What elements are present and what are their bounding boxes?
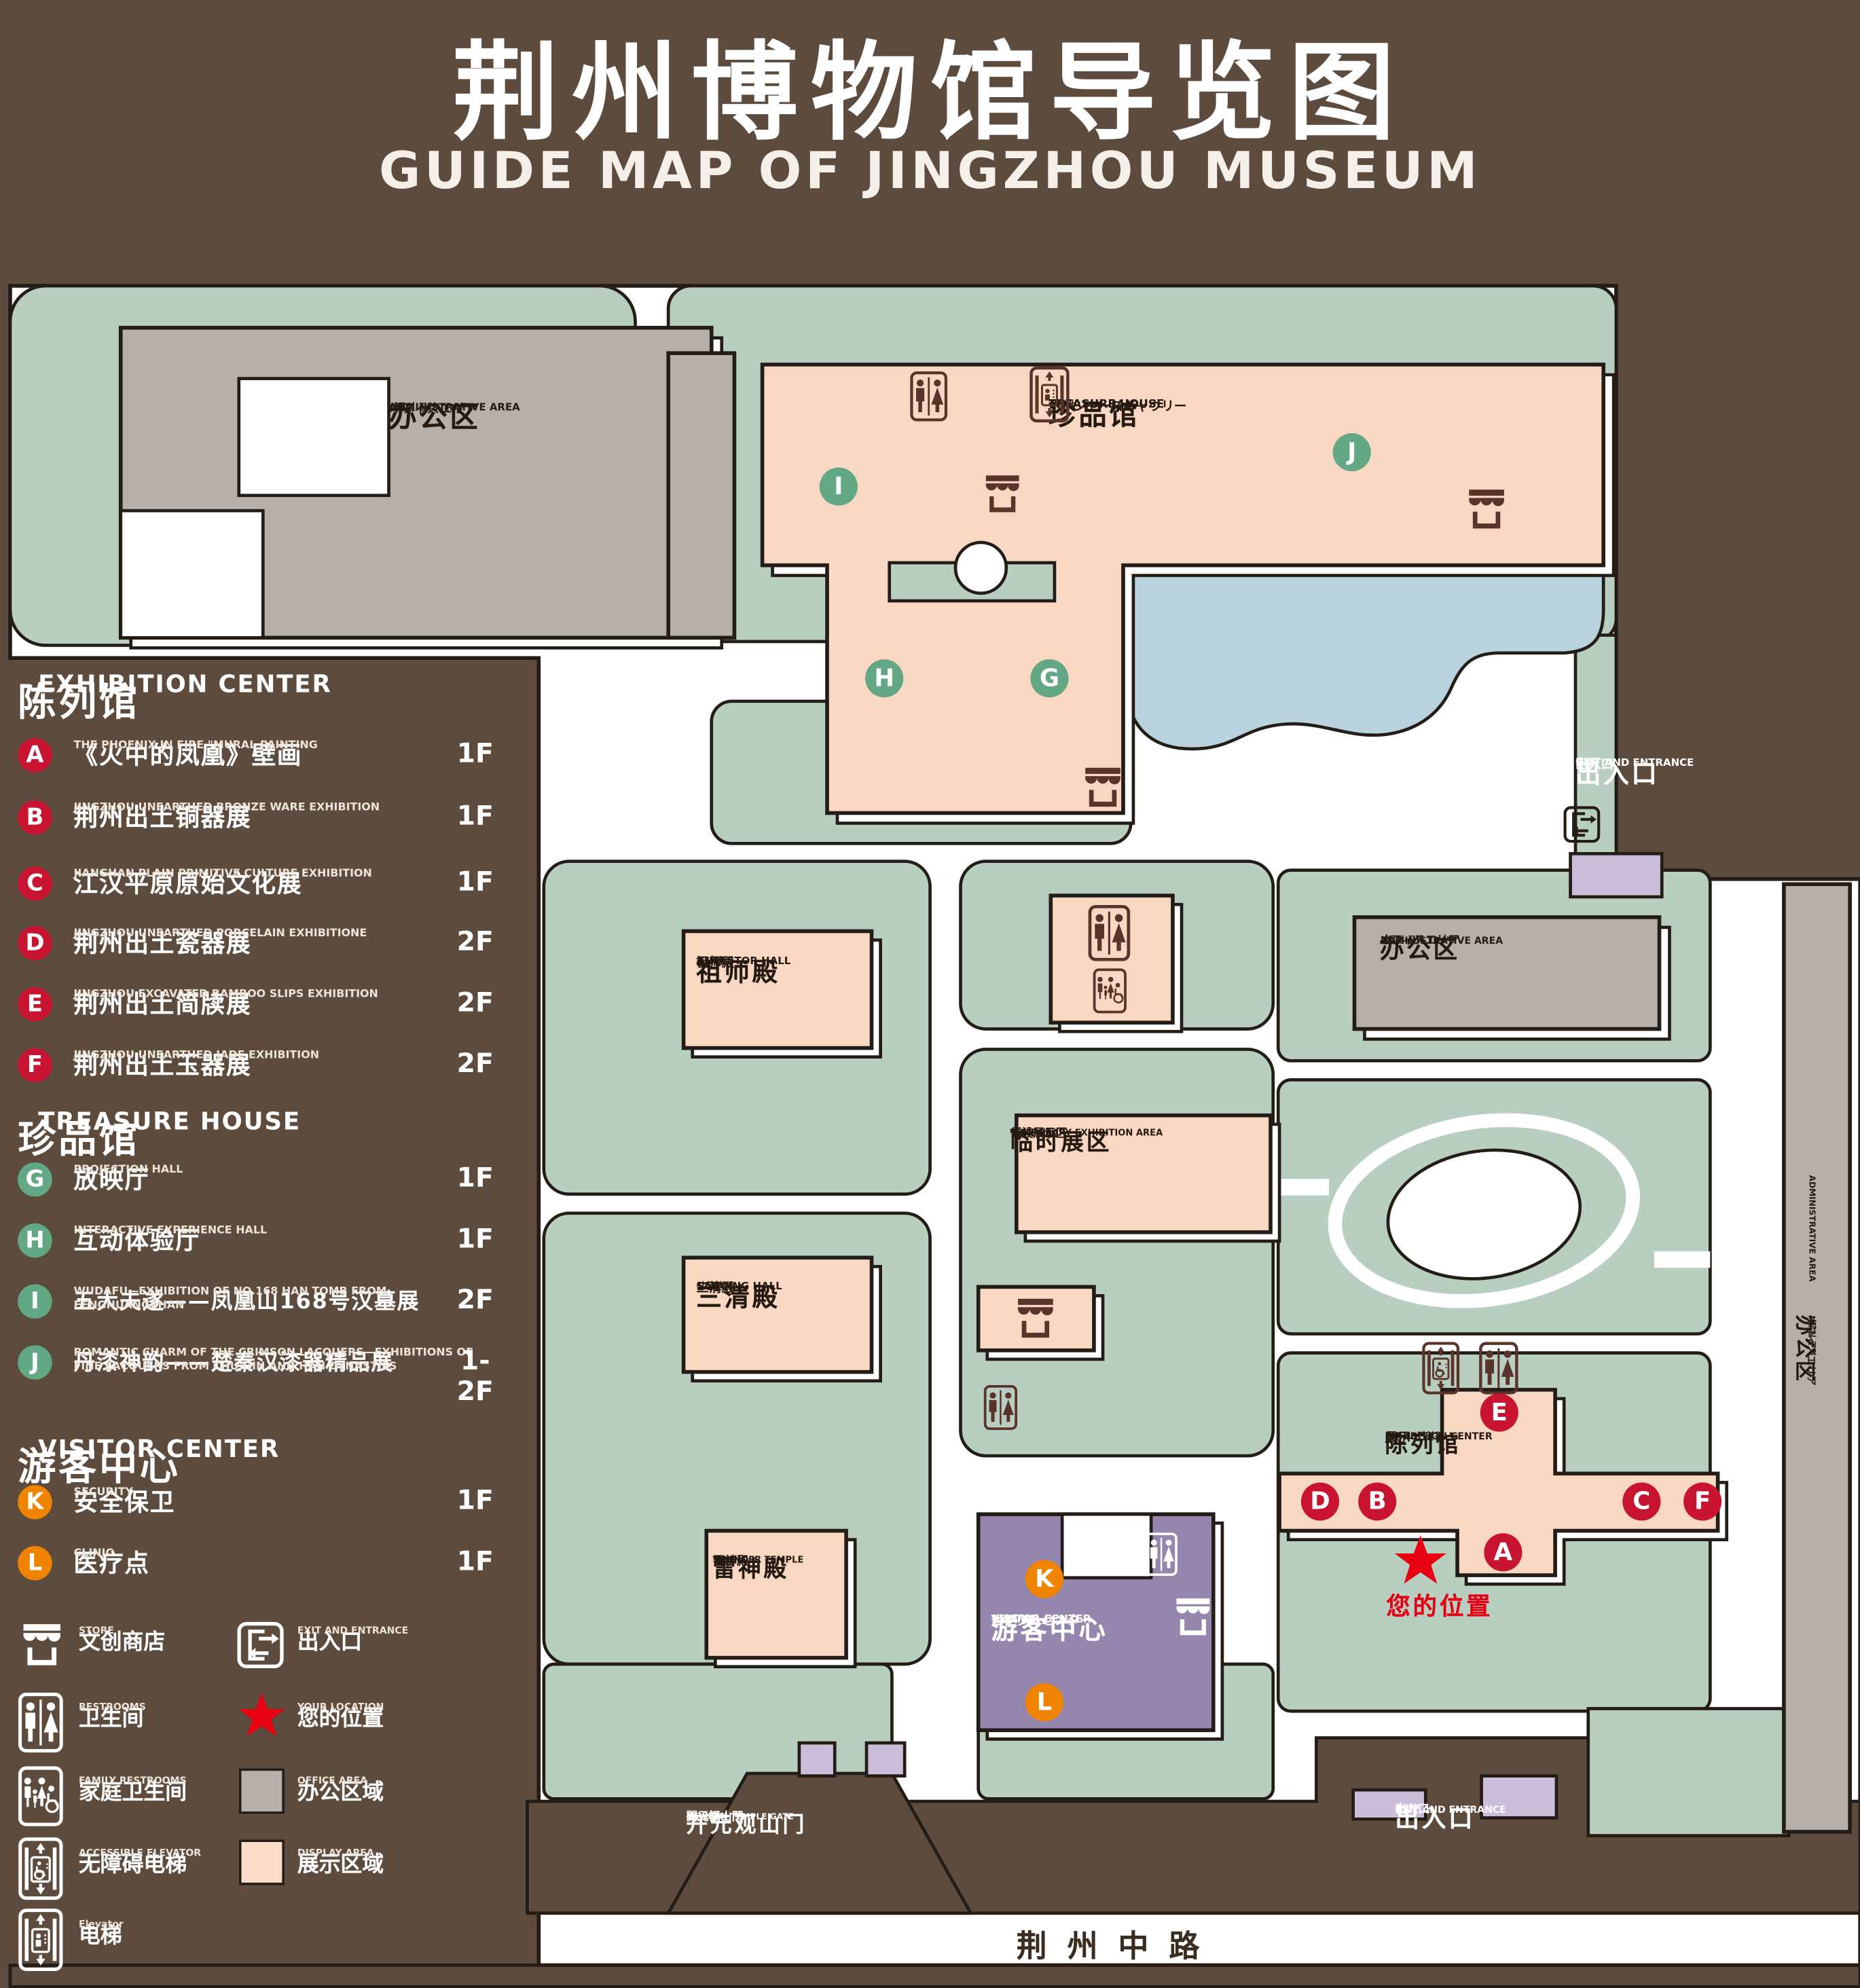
your-location-label: 您的位置 [1345, 1588, 1535, 1623]
elevator-icon [18, 1908, 66, 1966]
legend-item-c: C 江汉平原原始文化展 JIANGHAN PLAIN PRIMITIVE CUL… [18, 870, 528, 929]
floor-label: 1-2F [448, 1345, 503, 1406]
map-marker-g: G [1030, 659, 1068, 697]
marker-badge-i: I [18, 1285, 52, 1319]
map-marker-c: C [1622, 1482, 1660, 1520]
marker-badge-a: A [18, 738, 52, 773]
page-subtitle: GUIDE MAP OF JINGZHOU MUSEUM [0, 143, 1860, 201]
store-icon [18, 1621, 66, 1679]
page-title: 荆州博物馆导览图 [0, 7, 1860, 161]
floor-label: 1F [448, 1162, 503, 1193]
floor-label: 2F [448, 1285, 503, 1315]
map-marker-l: L [1025, 1683, 1063, 1721]
floor-label: 1F [448, 800, 503, 831]
map-marker-e: E [1480, 1393, 1518, 1431]
legend-key-your-location: 您的位置YOUR LOCATION [236, 1692, 452, 1758]
legend-key-exit: 出入口EXIT AND ENTRANCE [236, 1621, 452, 1687]
marker-badge-c: C [18, 866, 52, 901]
family-restroom-icon [18, 1766, 66, 1824]
marker-badge-f: F [18, 1048, 52, 1083]
restroom-icon [18, 1692, 66, 1750]
legend-key-elevator: 电梯Elevator [18, 1908, 234, 1974]
map-marker-d: D [1301, 1482, 1339, 1520]
marker-badge-g: G [18, 1162, 52, 1197]
legend-item-g: G 放映厅 PROJECTION HALL 1F [18, 1166, 528, 1225]
legend-item-d: D 荆州出土瓷器展 JINGZHOU UNEARTHED PORCELAIN E… [18, 930, 528, 989]
accessible-elevator-icon [18, 1837, 66, 1895]
your-location-star-icon [1393, 1534, 1444, 1585]
legend-item-i: I 五大夫遂——凤凰山168号汉墓展 WUDAFU—EXHIBITION OF … [18, 1288, 528, 1346]
legend-item-a: A 《火中的凤凰》壁画 THE PHOENIX IN FIRE "MURAL P… [18, 742, 528, 800]
legend-key-store: 文创商店STORE [18, 1621, 234, 1687]
legend-key-family-restrooms: 家庭卫生间FAMILY RESTROOMS [18, 1766, 234, 1832]
legend-key-accessible-elevator: 无障碍电梯ACCESSIBLE ELEVATOR [18, 1837, 234, 1902]
legend-item-j: J 丹漆神韵——楚秦汉漆器精品展 ROMANTIC CHARM OF THE C… [18, 1349, 528, 1407]
marker-badge-b: B [18, 800, 52, 835]
location-star-icon [236, 1692, 287, 1743]
floor-label: 1F [448, 1546, 503, 1577]
marker-badge-h: H [18, 1223, 52, 1258]
map-marker-f: F [1683, 1482, 1721, 1520]
legend-key-office-area: 办公区域OFFICE AREA [236, 1766, 452, 1832]
marker-badge-e: E [18, 987, 52, 1022]
legend-item-k: K 安全保卫 SECURITY 1F [18, 1489, 528, 1547]
floor-label: 1F [448, 1485, 503, 1515]
marker-badge-k: K [18, 1485, 52, 1520]
map-marker-k: K [1025, 1560, 1063, 1598]
floor-label: 1F [448, 1223, 503, 1254]
legend-item-e: E 荆州出土简牍展 JINGZHOU EXCAVATED BAMBOO SLIP… [18, 991, 528, 1049]
map-marker-h: H [865, 659, 903, 697]
map-marker-b: B [1358, 1482, 1396, 1520]
exit-icon [236, 1621, 285, 1679]
display-area-swatch [239, 1839, 285, 1885]
office-area-swatch [239, 1768, 285, 1814]
legend-item-f: F 荆州出土玉器展 JINGZHOU UNEARTHED JADE EXHIBI… [18, 1052, 528, 1110]
guide-map-page: 荆州博物馆导览图 GUIDE MAP OF JINGZHOU MUSEUM 陈列… [0, 0, 1860, 1988]
marker-badge-l: L [18, 1546, 52, 1581]
legend-item-b: B 荆州出土铜器展 JINGZHOU UNEARTHED BRONZE WARE… [18, 804, 528, 862]
road-label: 荆州中路 [1017, 1921, 1220, 1965]
legend-key-restrooms: 卫生间RESTROOMS [18, 1692, 234, 1758]
map-marker-a: A [1484, 1533, 1522, 1571]
map-marker-j: J [1333, 433, 1371, 471]
legend-key-display-area: 展示区域DISPLAY AREA [236, 1837, 452, 1902]
floor-label: 1F [448, 866, 503, 897]
floor-label: 2F [448, 987, 503, 1018]
map-marker-i: I [820, 468, 858, 506]
floor-label: 2F [448, 1048, 503, 1079]
legend-item-l: L 医疗点 CLINIC 1F [18, 1550, 528, 1608]
floor-label: 1F [448, 738, 503, 769]
legend-item-h: H 互动体验厅 INTERACTIVE EXPERIENCE HALL 1F [18, 1227, 528, 1285]
floor-label: 2F [448, 926, 503, 957]
marker-badge-d: D [18, 926, 52, 961]
marker-badge-j: J [18, 1345, 52, 1380]
